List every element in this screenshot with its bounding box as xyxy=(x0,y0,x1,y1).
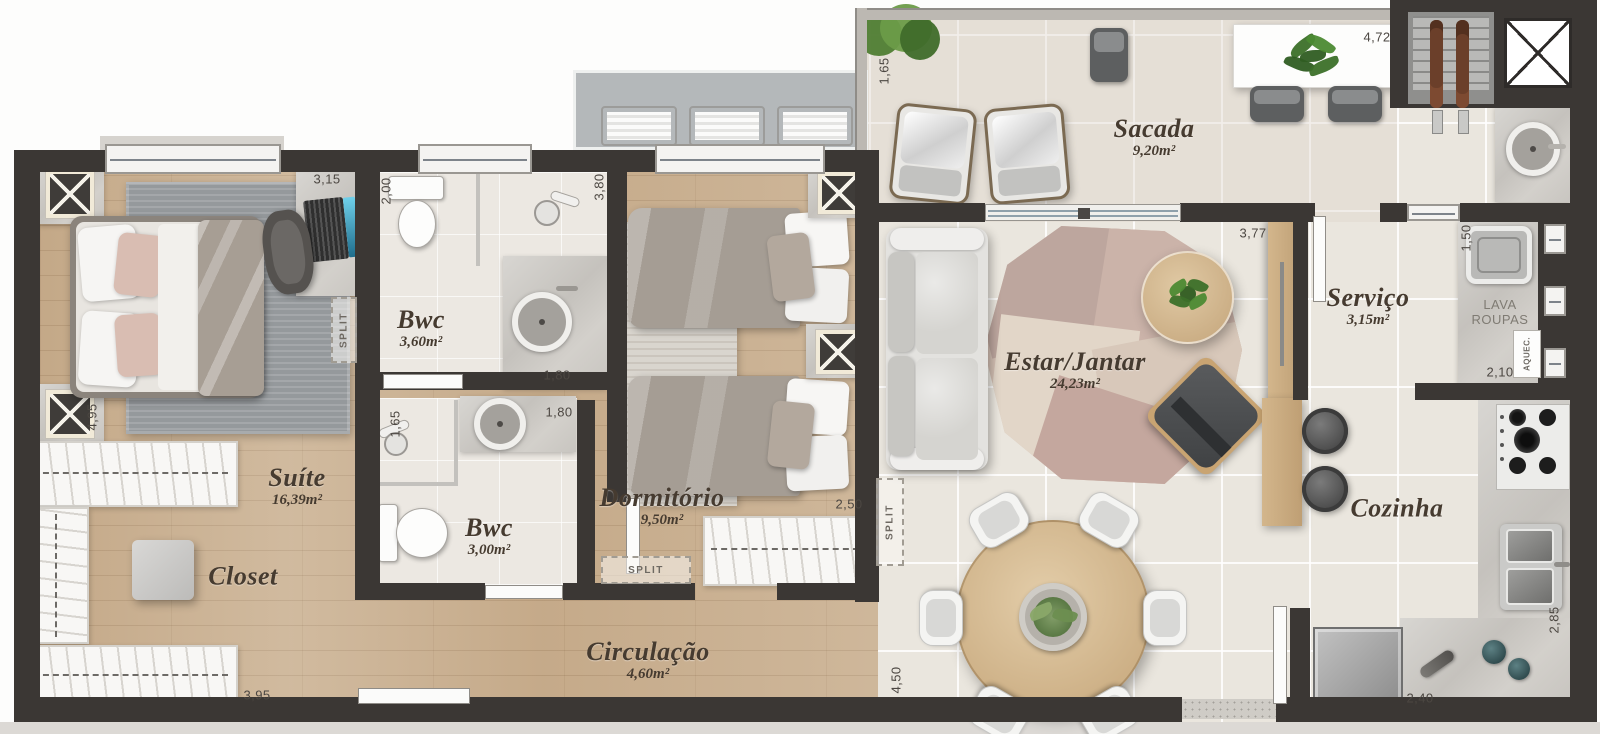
dimension-label: 3,95 xyxy=(244,688,271,703)
split-unit-label: SPLIT xyxy=(876,478,904,566)
room-name: Estar/Jantar xyxy=(1004,348,1146,376)
closet-ottoman xyxy=(132,540,194,600)
room-label-closet: Closet xyxy=(208,562,277,590)
bathroom-sink xyxy=(512,292,572,352)
breakfast-bar xyxy=(1262,398,1302,526)
bedside-lamp-icon xyxy=(46,170,94,218)
bathroom-sink xyxy=(474,398,526,450)
room-name: Circulação xyxy=(586,638,709,666)
dimension-label: 4,50 xyxy=(889,667,904,694)
room-name: Closet xyxy=(208,562,277,590)
bedroom-wardrobe xyxy=(703,516,867,586)
sofa xyxy=(886,228,988,470)
wall xyxy=(14,150,40,722)
room-name: Serviço xyxy=(1327,284,1410,312)
toilet-tank xyxy=(378,504,398,562)
wall xyxy=(1380,203,1407,222)
room-name: Cozinha xyxy=(1350,494,1443,522)
wall xyxy=(1276,697,1597,722)
dimension-label: 1,50 xyxy=(1459,225,1474,252)
room-area: 16,39m² xyxy=(268,492,325,508)
room-area: 3,15m² xyxy=(1327,312,1410,328)
sink-faucet xyxy=(556,286,578,291)
dimension-label: 2,85 xyxy=(1547,607,1562,634)
room-label-cozinha: Cozinha xyxy=(1350,494,1443,522)
entry-threshold xyxy=(1182,699,1276,719)
room-label-bwc-suite: Bwc3,60m² xyxy=(397,306,445,350)
wall xyxy=(1570,0,1597,722)
split-unit-label: SPLIT xyxy=(601,556,691,584)
wall xyxy=(1415,383,1572,400)
shower-glass xyxy=(476,172,480,266)
wall xyxy=(857,203,985,222)
wall xyxy=(777,583,858,600)
tv-panel xyxy=(1268,218,1296,402)
balcony-sliding-door xyxy=(985,204,1181,221)
dimension-label: 4,95 xyxy=(85,404,100,431)
outdoor-table-plant xyxy=(1278,32,1344,88)
shower-head-icon xyxy=(534,200,560,226)
ground-shadow xyxy=(0,722,1600,734)
bedside-lamp-icon xyxy=(816,330,860,374)
dining-chair xyxy=(1143,590,1187,646)
wall xyxy=(577,400,595,583)
room-area: 9,50m² xyxy=(600,512,725,528)
room-label-bwc-social: Bwc3,00m² xyxy=(465,514,513,558)
wall xyxy=(1293,203,1308,400)
toilet-tank xyxy=(388,176,444,200)
wall xyxy=(355,583,485,600)
service-window xyxy=(1407,204,1460,221)
barbecue-grill xyxy=(1408,12,1494,104)
bedroom-window xyxy=(655,144,825,174)
shaft-x-icon xyxy=(1504,18,1572,88)
room-area: 3,60m² xyxy=(397,334,445,350)
shower-glass xyxy=(454,400,458,486)
room-name: Bwc xyxy=(397,306,445,334)
room-label-dormitorio: Dormitório9,50m² xyxy=(600,484,725,528)
dimension-label: 2,00 xyxy=(379,178,394,205)
gourmet-faucet xyxy=(1548,144,1566,149)
dining-centerpiece xyxy=(1019,583,1087,651)
outdoor-dining-chair xyxy=(1328,86,1382,122)
bar-stool xyxy=(1302,408,1348,454)
shower-glass xyxy=(378,482,458,486)
dimension-label: 1,65 xyxy=(877,58,892,85)
room-area: 9,20m² xyxy=(1114,143,1195,159)
room-label-estar-jantar: Estar/Jantar24,23m² xyxy=(1004,348,1146,392)
entry-door-leaf xyxy=(1273,606,1287,704)
suite-bed xyxy=(70,216,262,398)
closet-shelf-unit xyxy=(23,441,238,507)
bedside-lamp-icon xyxy=(818,172,860,214)
suite-door xyxy=(358,688,470,704)
toilet-bowl xyxy=(396,508,448,558)
room-label-sacada: Sacada9,20m² xyxy=(1114,115,1195,159)
bar-stool xyxy=(1302,466,1348,512)
dimension-label: 2,50 xyxy=(836,497,863,512)
wall xyxy=(14,697,1182,722)
room-label-suite: Suíte16,39m² xyxy=(268,464,325,508)
gourmet-sink xyxy=(1506,122,1560,176)
dimension-label: 2,10 xyxy=(1487,365,1514,380)
dimension-label: 1,65 xyxy=(388,411,403,438)
room-area: 24,23m² xyxy=(1004,376,1146,392)
kitchen-decor-bowl xyxy=(1508,658,1530,680)
laundry-line1: LAVA xyxy=(1483,297,1516,312)
dimension-label: 1,80 xyxy=(544,368,571,383)
laundry-line2: ROUPAS xyxy=(1472,312,1529,327)
dimension-label: 1,80 xyxy=(546,405,573,420)
room-name: Suíte xyxy=(268,464,325,492)
bathroom2-door xyxy=(485,585,563,599)
room-label-circulacao: Circulação4,60m² xyxy=(586,638,709,682)
wall xyxy=(607,172,627,502)
bathroom1-door xyxy=(383,374,463,389)
ac-condenser-unit xyxy=(601,106,677,146)
kitchen-sink xyxy=(1500,524,1562,610)
floor-plan: LAVA ROUPAS AQUEC. Suíte16,39m²ClosetBwc… xyxy=(0,0,1600,734)
bathroom-window xyxy=(418,144,532,174)
ac-condenser-unit xyxy=(689,106,765,146)
vent-slot xyxy=(1544,348,1566,378)
suite-window xyxy=(105,144,281,174)
single-bed xyxy=(628,206,856,330)
balcony-parapet xyxy=(855,8,867,150)
room-label-servico: Serviço3,15m² xyxy=(1327,284,1410,328)
refrigerator xyxy=(1313,627,1403,707)
room-name: Sacada xyxy=(1114,115,1195,143)
outdoor-dining-chair xyxy=(1250,86,1304,122)
outdoor-dining-chair xyxy=(1090,28,1128,82)
toilet-bowl xyxy=(398,200,436,248)
dimension-label: 3,77 xyxy=(1240,226,1267,241)
room-name: Dormitório xyxy=(600,484,725,512)
ac-condenser-unit xyxy=(777,106,853,146)
split-unit-label: SPLIT xyxy=(331,297,357,363)
balcony-parapet xyxy=(855,8,1395,20)
kitchen-decor-bowl xyxy=(1482,640,1506,664)
coffee-table-plant xyxy=(1166,272,1210,316)
wall xyxy=(563,583,695,600)
dimension-label: 3,15 xyxy=(314,172,341,187)
dining-chair xyxy=(919,590,963,646)
heater-label: AQUEC. xyxy=(1513,330,1541,378)
accent-armchair xyxy=(1160,370,1252,462)
vent-slot xyxy=(1544,286,1566,316)
cooktop xyxy=(1496,404,1570,490)
laundry-tub xyxy=(1466,226,1532,284)
laundry-label: LAVA ROUPAS xyxy=(1458,298,1542,328)
lounge-chair xyxy=(983,103,1071,206)
single-bed xyxy=(628,374,856,498)
wall xyxy=(1290,608,1310,722)
dimension-label: 2,40 xyxy=(1407,691,1434,706)
room-name: Bwc xyxy=(465,514,513,542)
dimension-label: 3,80 xyxy=(592,174,607,201)
service-door-leaf xyxy=(1313,216,1326,302)
room-area: 3,00m² xyxy=(465,542,513,558)
vent-slot xyxy=(1544,224,1566,254)
dimension-label: 4,72 xyxy=(1364,30,1391,45)
room-area: 4,60m² xyxy=(586,666,709,682)
lounge-chair xyxy=(888,102,978,206)
